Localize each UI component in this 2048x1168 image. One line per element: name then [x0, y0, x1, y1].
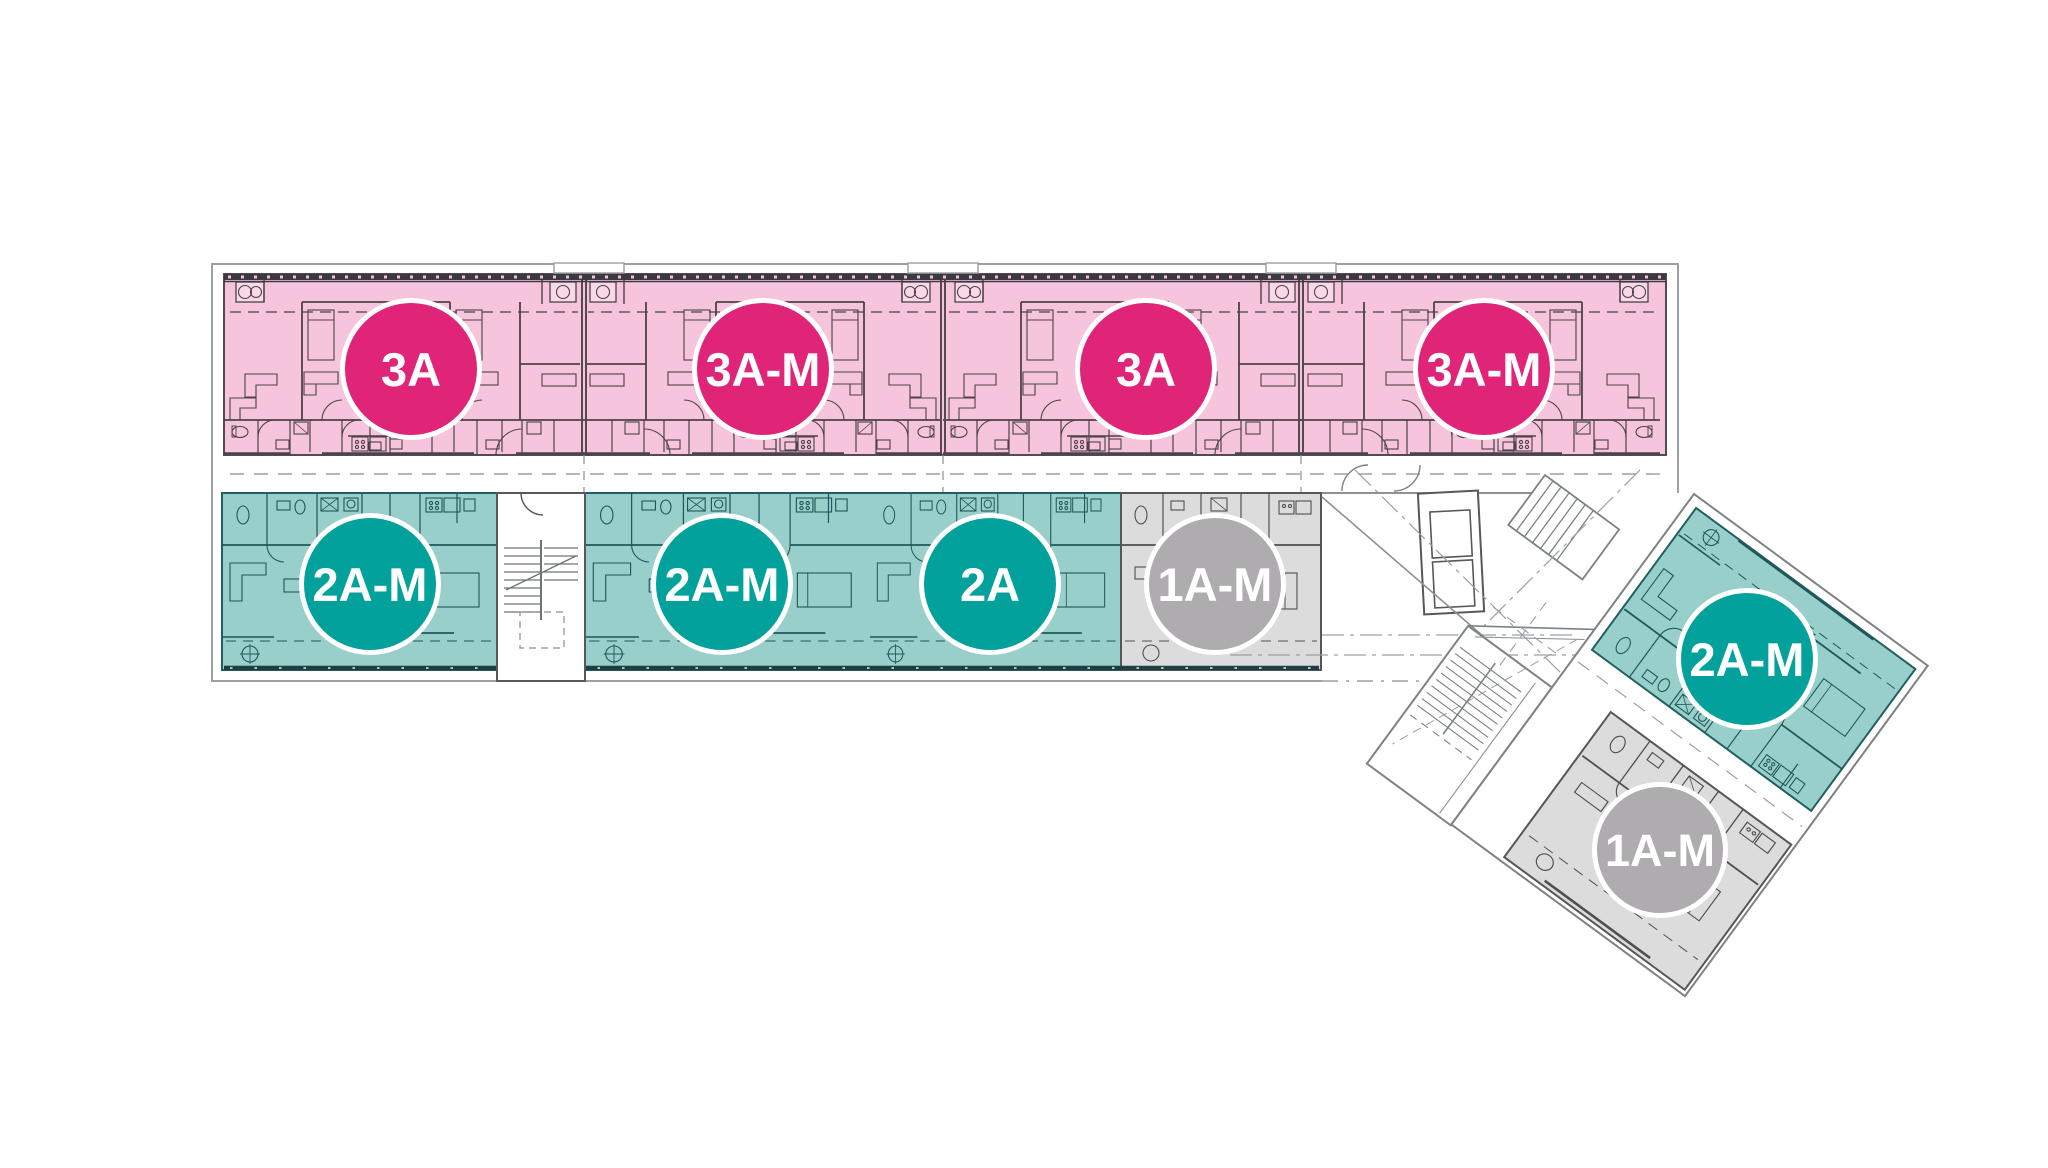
svg-text:3A-M: 3A-M	[1427, 343, 1542, 396]
svg-text:3A: 3A	[381, 343, 441, 396]
svg-text:1A-M: 1A-M	[1605, 825, 1715, 876]
svg-text:2A-M: 2A-M	[665, 558, 780, 611]
svg-text:2A: 2A	[960, 558, 1020, 611]
svg-text:2A-M: 2A-M	[1690, 633, 1805, 686]
svg-text:1A-M: 1A-M	[1158, 558, 1273, 611]
svg-text:2A-M: 2A-M	[313, 558, 428, 611]
svg-text:3A-M: 3A-M	[706, 343, 821, 396]
svg-text:3A: 3A	[1116, 343, 1176, 396]
